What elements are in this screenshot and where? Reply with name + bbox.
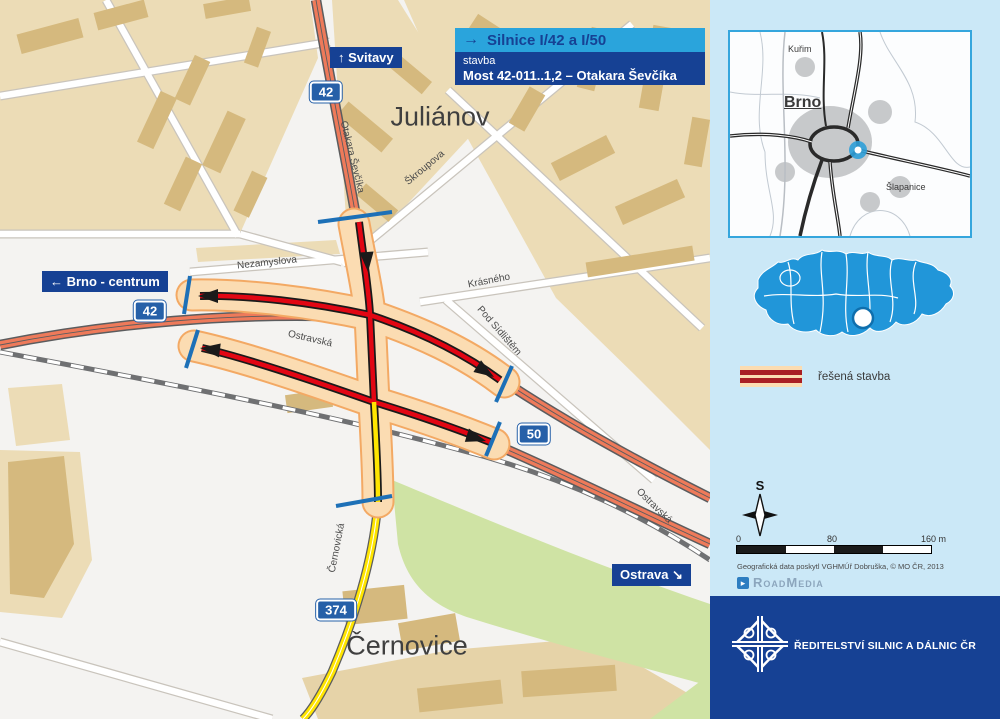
roadmedia-name: RoadMedia <box>753 575 824 590</box>
inset-location-marker-dot <box>855 147 862 154</box>
direction-sign-ostrava: Ostrava ↘ <box>612 564 691 586</box>
scale-bar-segments <box>736 545 932 554</box>
inset-map-brno: Kuřim Brno Šlapanice <box>728 30 972 238</box>
inset-town-slapanice: Šlapanice <box>886 182 926 192</box>
route-title-bar: → Silnice I/42 a I/50 <box>455 28 705 52</box>
road-shield-42-west: 42 <box>134 301 166 322</box>
scale-label-80: 80 <box>827 534 837 544</box>
route-arrow-icon: → <box>463 31 479 49</box>
organization-name: ŘEDITELSTVÍ SILNIC A DÁLNIC ČR <box>794 640 994 652</box>
scale-label-0: 0 <box>736 534 741 544</box>
district-label-cernovice: Černovice <box>346 631 468 662</box>
scale-bar: 0 80 160 m <box>736 534 932 554</box>
scale-label-160: 160 m <box>921 534 946 544</box>
czech-republic-map <box>728 240 968 358</box>
footer-bar: ŘEDITELSTVÍ SILNIC A DÁLNIC ČR <box>710 596 1000 719</box>
inset-map-canvas <box>730 32 970 236</box>
legend-label: řešená stavba <box>818 371 890 383</box>
compass: S <box>738 478 782 542</box>
inset-town-brno: Brno <box>784 94 821 112</box>
roadmedia-icon: ▸ <box>737 577 749 589</box>
compass-rose-icon <box>742 493 778 537</box>
legend: řešená stavba <box>740 366 890 387</box>
direction-sign-svitavy: ↑ Svitavy <box>330 47 402 68</box>
compass-north-label: S <box>738 478 782 493</box>
stavba-label: stavba <box>463 55 697 68</box>
project-title-box: stavba Most 42-011..1,2 – Otakara Ševčík… <box>455 52 705 85</box>
road-shield-50: 50 <box>518 424 550 445</box>
roadmedia-credit: ▸ RoadMedia <box>737 575 824 590</box>
attribution-text: Geografická data poskytl VGHMÚř Dobruška… <box>737 562 944 571</box>
district-label-julianov: Juliánov <box>390 102 489 133</box>
construction-leaflet: → Silnice I/42 a I/50 stavba Most 42-011… <box>0 0 1000 719</box>
route-title: Silnice I/42 a I/50 <box>487 32 606 49</box>
project-name: Most 42-011..1,2 – Otakara Ševčíka <box>463 68 697 83</box>
road-shield-374: 374 <box>316 600 356 621</box>
sidebar: Kuřim Brno Šlapanice řešená <box>710 0 1000 719</box>
direction-sign-brno-centrum: ← Brno - centrum <box>42 271 168 292</box>
czech-location-marker <box>853 308 873 328</box>
rsd-logo-icon <box>732 616 788 672</box>
construction-map: → Silnice I/42 a I/50 stavba Most 42-011… <box>0 0 710 719</box>
inset-town-kurim: Kuřim <box>788 44 812 54</box>
legend-road-swatch <box>740 366 802 387</box>
road-shield-42-north: 42 <box>310 82 342 103</box>
